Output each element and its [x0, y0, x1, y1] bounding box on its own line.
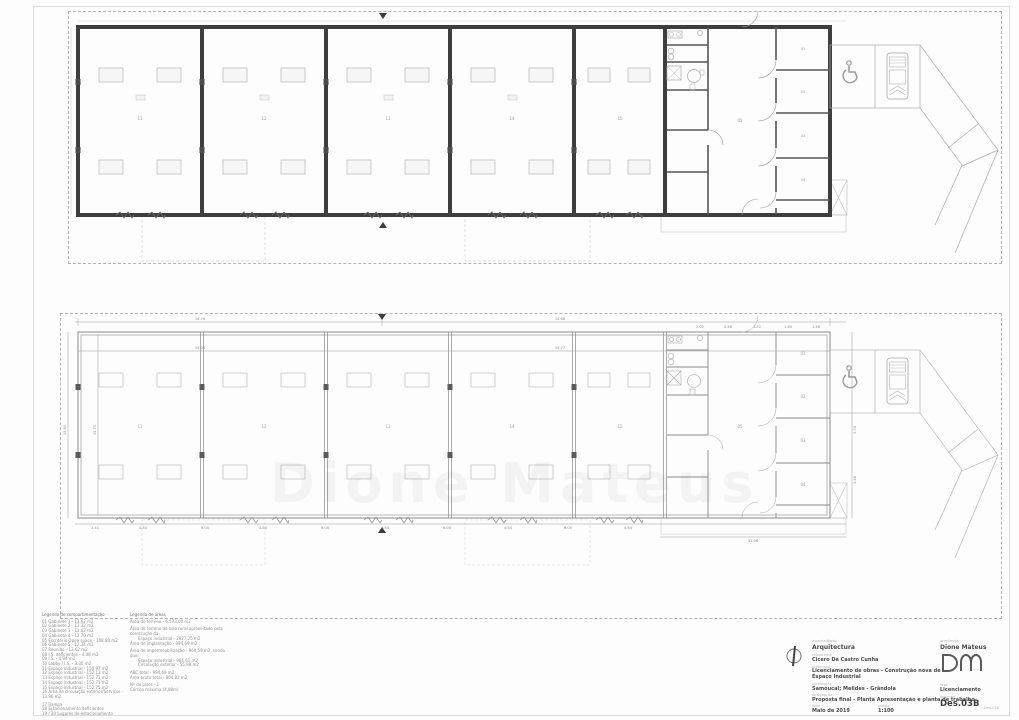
- title-block: especialidade Arquitectura requerente Ci…: [770, 636, 1010, 714]
- requerente-value: Cicero De Castro Cunha: [812, 657, 878, 663]
- wing-walls: [667, 27, 830, 215]
- corner-stamp: Des.03B: [984, 706, 999, 710]
- especialidade-label: especialidade: [812, 639, 837, 643]
- svg-text:04: 04: [800, 482, 806, 487]
- north-symbol-icon: [782, 644, 806, 668]
- svg-text:14.77: 14.77: [555, 346, 565, 350]
- svg-text:14: 14: [509, 116, 515, 121]
- legend-item: Área do terreno - 6.573,00 m2: [130, 620, 235, 625]
- svg-text:11: 11: [137, 116, 143, 121]
- svg-text:05: 05: [737, 118, 743, 123]
- legend-item: Circulação exterior - 55,98 m2: [138, 663, 235, 668]
- svg-text:03: 03: [801, 134, 806, 138]
- svg-text:01: 01: [801, 47, 806, 51]
- svg-text:14.05: 14.05: [195, 346, 205, 350]
- legend-rooms-header: Legenda de compartimentação: [42, 613, 130, 618]
- svg-text:6.00: 6.00: [443, 526, 452, 530]
- svg-text:4.84: 4.84: [259, 526, 268, 530]
- car-icon-working: [887, 358, 908, 404]
- svg-text:12: 12: [261, 424, 267, 429]
- wc-fixtures-working: [667, 335, 703, 395]
- svg-text:02: 02: [801, 90, 806, 94]
- svg-text:6.00: 6.00: [321, 526, 330, 530]
- svg-text:13: 13: [385, 116, 391, 121]
- svg-text:03: 03: [800, 438, 806, 443]
- bay-room-labels: 11 12 13 14 15 05: [137, 116, 743, 123]
- legend-areas: Legenda de áreas Área do terreno - 6.573…: [130, 613, 235, 693]
- legend-rooms: Legenda de compartimentação 01 Gabinete …: [42, 613, 130, 717]
- svg-text:31.08: 31.08: [748, 539, 759, 543]
- svg-text:14.66: 14.66: [555, 317, 566, 321]
- svg-text:12: 12: [261, 116, 267, 121]
- escala-value: 1:100: [878, 708, 894, 714]
- svg-text:4.84: 4.84: [624, 526, 633, 530]
- watermark: Dione Mateus: [270, 452, 730, 515]
- svg-text:04: 04: [801, 178, 806, 182]
- svg-text:3.41: 3.41: [91, 526, 99, 530]
- svg-text:6.00: 6.00: [201, 526, 210, 530]
- especialidade-value: Arquitectura: [812, 644, 855, 651]
- parking-area: [830, 45, 998, 253]
- svg-text:4.84: 4.84: [504, 526, 513, 530]
- svg-text:2.02: 2.02: [696, 325, 704, 329]
- main-walls: [78, 27, 830, 215]
- legend-item: Área de implantação - 994,69 m2: [130, 642, 235, 647]
- localizacao-value: Samoucal; Melides - Grândola: [812, 686, 896, 692]
- wc-fixtures: [667, 30, 704, 90]
- drawing-sheet: 11 12 13 14 15 05: [0, 0, 1019, 720]
- svg-text:15.70: 15.70: [93, 424, 97, 435]
- presentation-floor-plan: 11 12 13 14 15 05: [40, 8, 1008, 308]
- wheelchair-icon-working: [843, 366, 857, 388]
- legend-item: Área bruta total - 904,82 m2: [130, 676, 235, 681]
- svg-text:6.00: 6.00: [564, 526, 573, 530]
- desenho-value: Des.03B: [940, 699, 979, 709]
- arquitecta-label: arquitecta: [940, 639, 958, 643]
- svg-text:15.40: 15.40: [63, 424, 67, 435]
- svg-text:15: 15: [617, 424, 623, 429]
- legend-item: 16 Área de circulação exterior/Serviços …: [42, 690, 130, 699]
- dm-logo: [940, 652, 986, 674]
- svg-text:4.84: 4.84: [139, 526, 148, 530]
- svg-text:1.48: 1.48: [812, 325, 821, 329]
- svg-text:1.52: 1.52: [753, 325, 761, 329]
- wheelchair-icon: [843, 61, 857, 83]
- fase-value: Licenciamento: [940, 687, 981, 693]
- svg-text:11: 11: [137, 424, 143, 429]
- svg-text:1.48: 1.48: [853, 475, 857, 484]
- svg-text:05: 05: [737, 424, 743, 429]
- parking-area-working: [830, 350, 998, 558]
- svg-text:3.30: 3.30: [853, 425, 857, 434]
- svg-text:13: 13: [385, 424, 391, 429]
- svg-text:15: 15: [617, 116, 623, 121]
- svg-text:4.84: 4.84: [381, 526, 390, 530]
- car-icon: [887, 53, 908, 99]
- data-value: Maio de 2019: [812, 708, 850, 714]
- legend-item: 19 / 20 Lugares de estacionamento: [42, 712, 130, 717]
- svg-text:14.76: 14.76: [195, 317, 206, 321]
- svg-text:2.48: 2.48: [724, 325, 733, 329]
- office-room-labels: 01 02 03 04: [801, 47, 806, 182]
- legend-item: Cércea máxima (4,88m): [130, 688, 235, 693]
- legend-areas-header: Legenda de áreas: [130, 613, 235, 618]
- arquitecta-value: Dione Mateus: [940, 644, 986, 651]
- svg-text:01: 01: [800, 351, 806, 356]
- svg-text:02: 02: [800, 394, 806, 399]
- svg-text:1.60: 1.60: [784, 325, 793, 329]
- svg-text:14: 14: [509, 424, 515, 429]
